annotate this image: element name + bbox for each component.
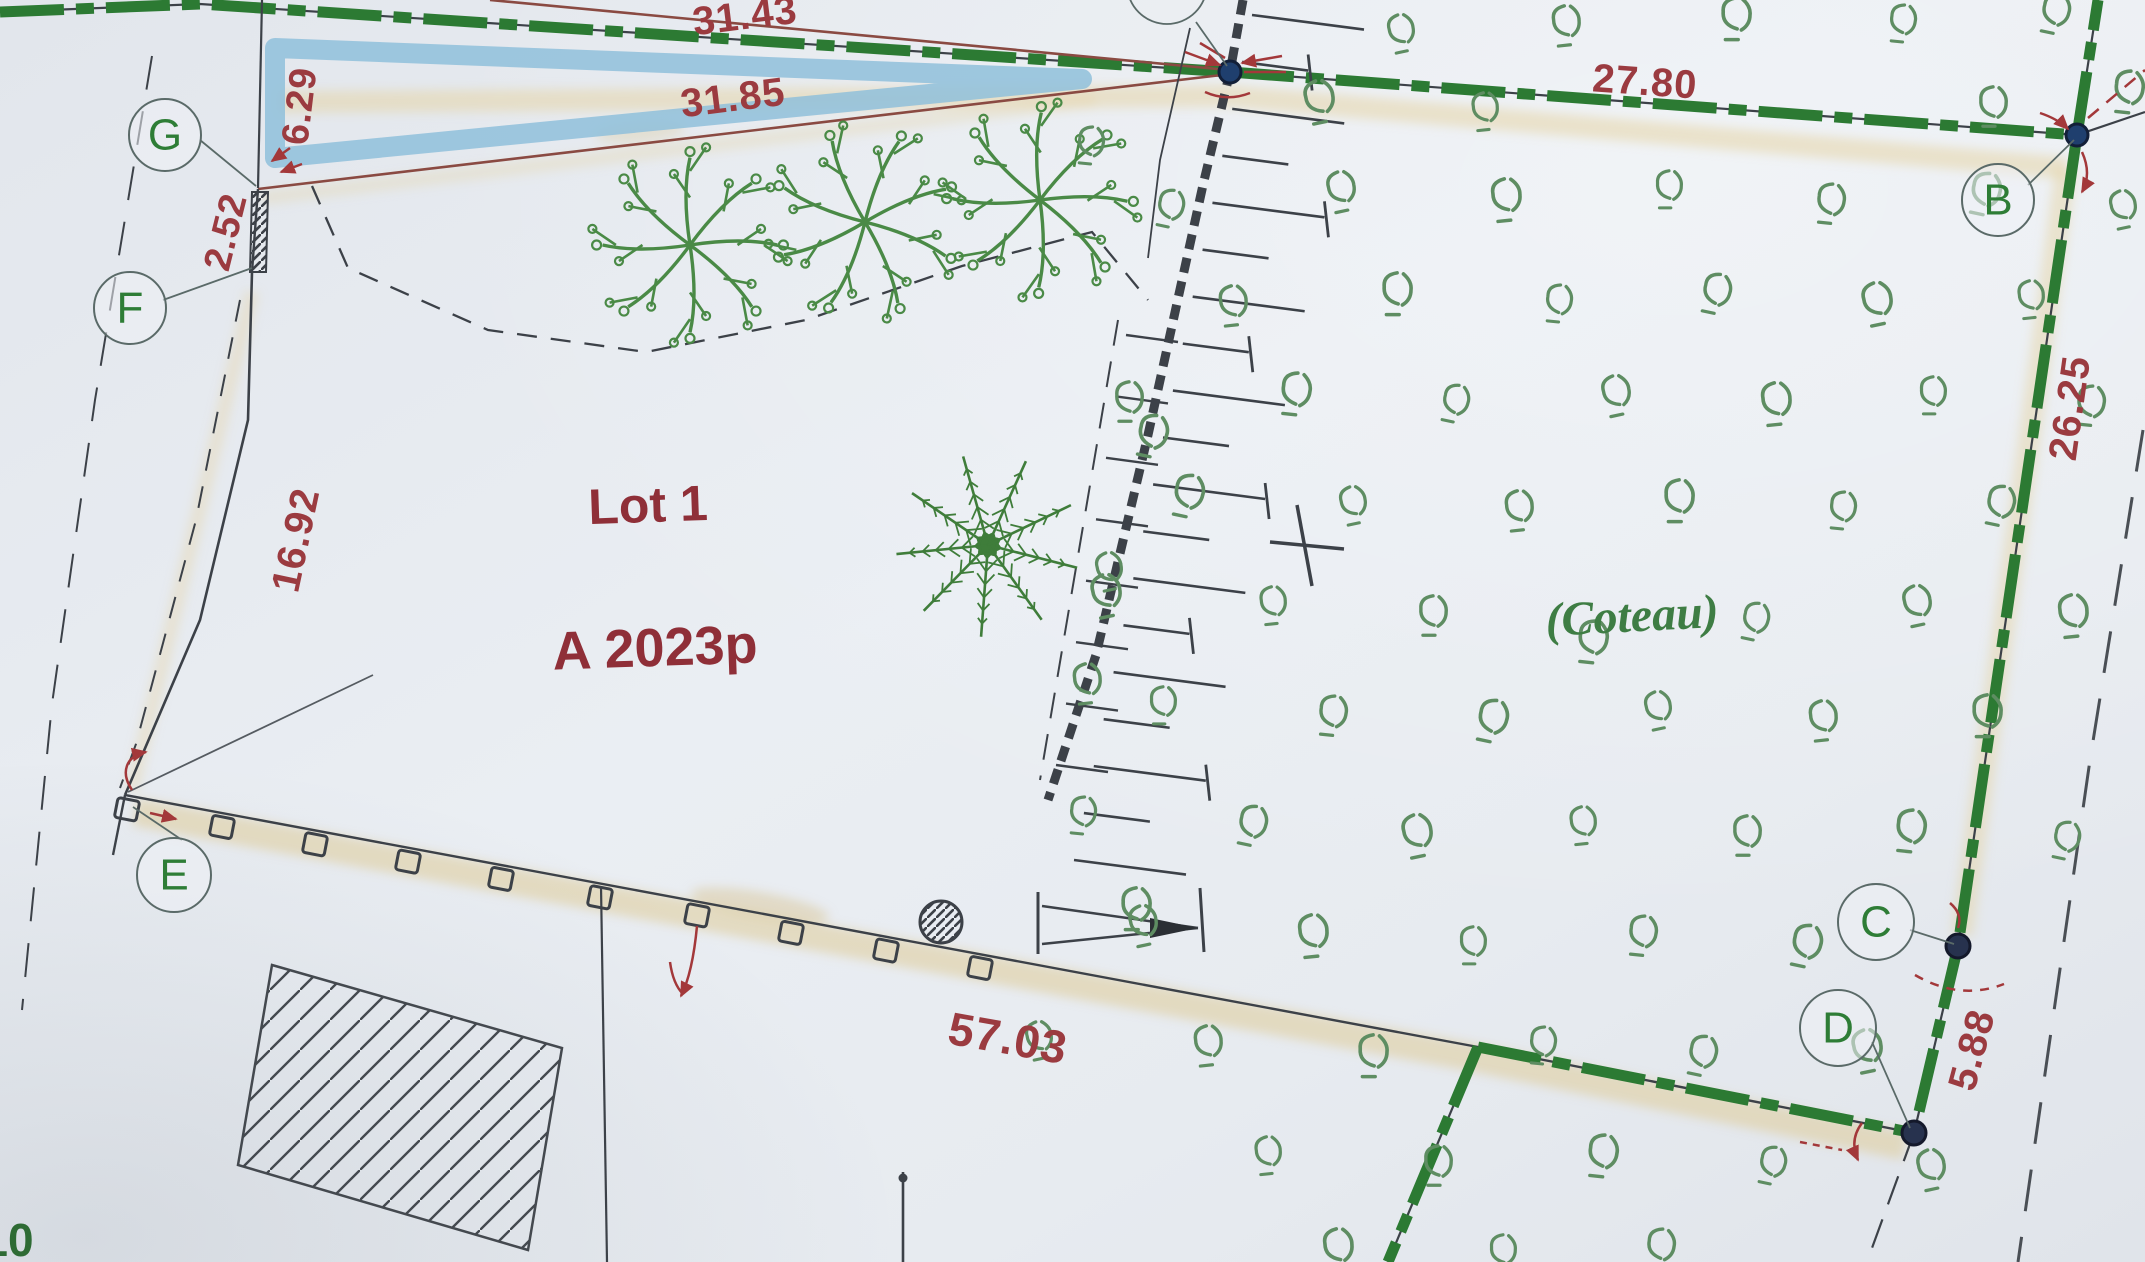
point-letter-C: C (1860, 898, 1892, 947)
hatched-circle-marker (920, 901, 962, 943)
point-letter-E: E (159, 851, 188, 900)
lot-ref-label: A 2023p (551, 614, 758, 681)
point-letter-G: G (148, 111, 182, 160)
point-letter-F: F (117, 284, 144, 333)
area-name-label: (Coteau) (1544, 585, 1720, 647)
lot-name-label: Lot 1 (587, 475, 708, 535)
point-letter-D: D (1822, 1004, 1854, 1053)
measurement-27-80: 27.80 (1591, 56, 1699, 107)
cadastral-plan: G F E B C D 31.43 31.85 27.80 6.29 2.52 … (0, 0, 2145, 1262)
point-letter-B: B (1983, 176, 2012, 225)
corner-number-label: 10 (0, 1214, 34, 1262)
survey-plan-photo: G F E B C D 31.43 31.85 27.80 6.29 2.52 … (0, 0, 2145, 1262)
